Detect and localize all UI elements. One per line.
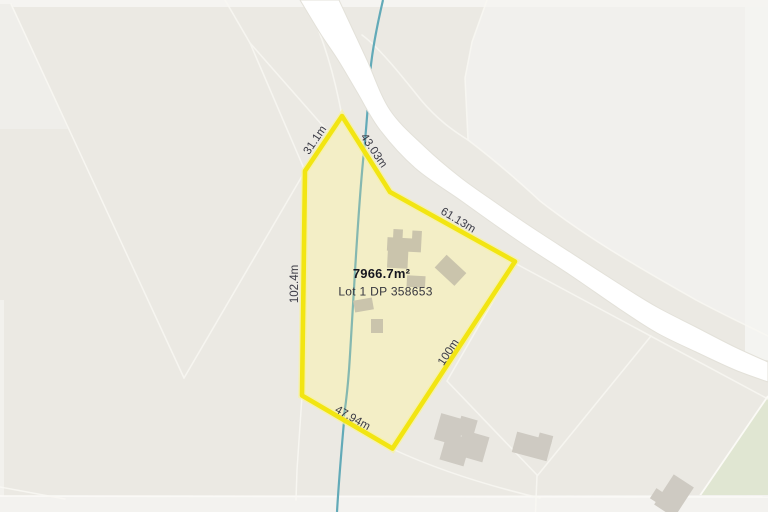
svg-text:Lot 1 DP 358653: Lot 1 DP 358653 xyxy=(338,285,432,299)
svg-text:102.4m: 102.4m xyxy=(289,265,301,303)
svg-text:7966.7m²: 7966.7m² xyxy=(353,266,411,281)
